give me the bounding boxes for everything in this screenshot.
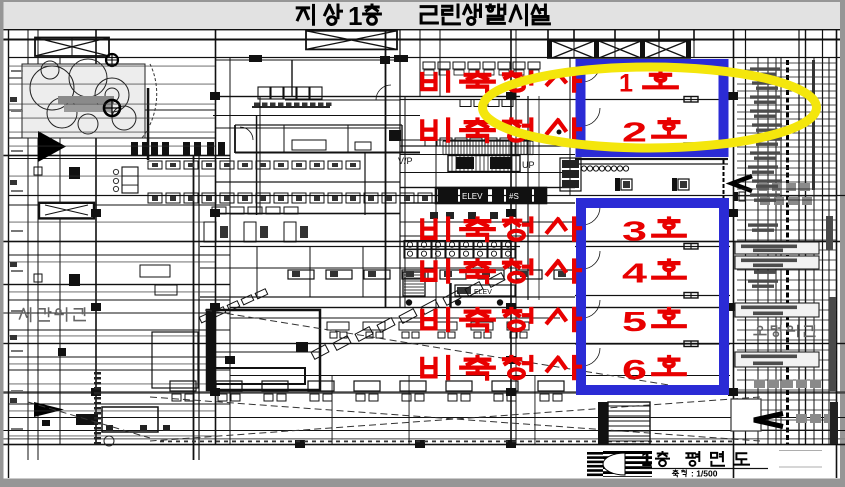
svg-text:ELEV: ELEV — [462, 192, 483, 201]
svg-text:5: 5 — [622, 306, 647, 337]
svg-text:1: 1 — [619, 70, 633, 98]
svg-text:4: 4 — [622, 258, 648, 289]
svg-text:: 1/500: : 1/500 — [691, 469, 718, 479]
svg-text:3: 3 — [622, 216, 647, 247]
svg-text:2: 2 — [622, 117, 647, 148]
svg-text:UP: UP — [522, 160, 535, 170]
svg-text:6: 6 — [622, 354, 647, 385]
svg-text:V/P: V/P — [398, 156, 413, 166]
svg-text:1: 1 — [641, 449, 652, 471]
svg-text:#S: #S — [509, 192, 519, 201]
svg-text:1: 1 — [348, 1, 362, 31]
